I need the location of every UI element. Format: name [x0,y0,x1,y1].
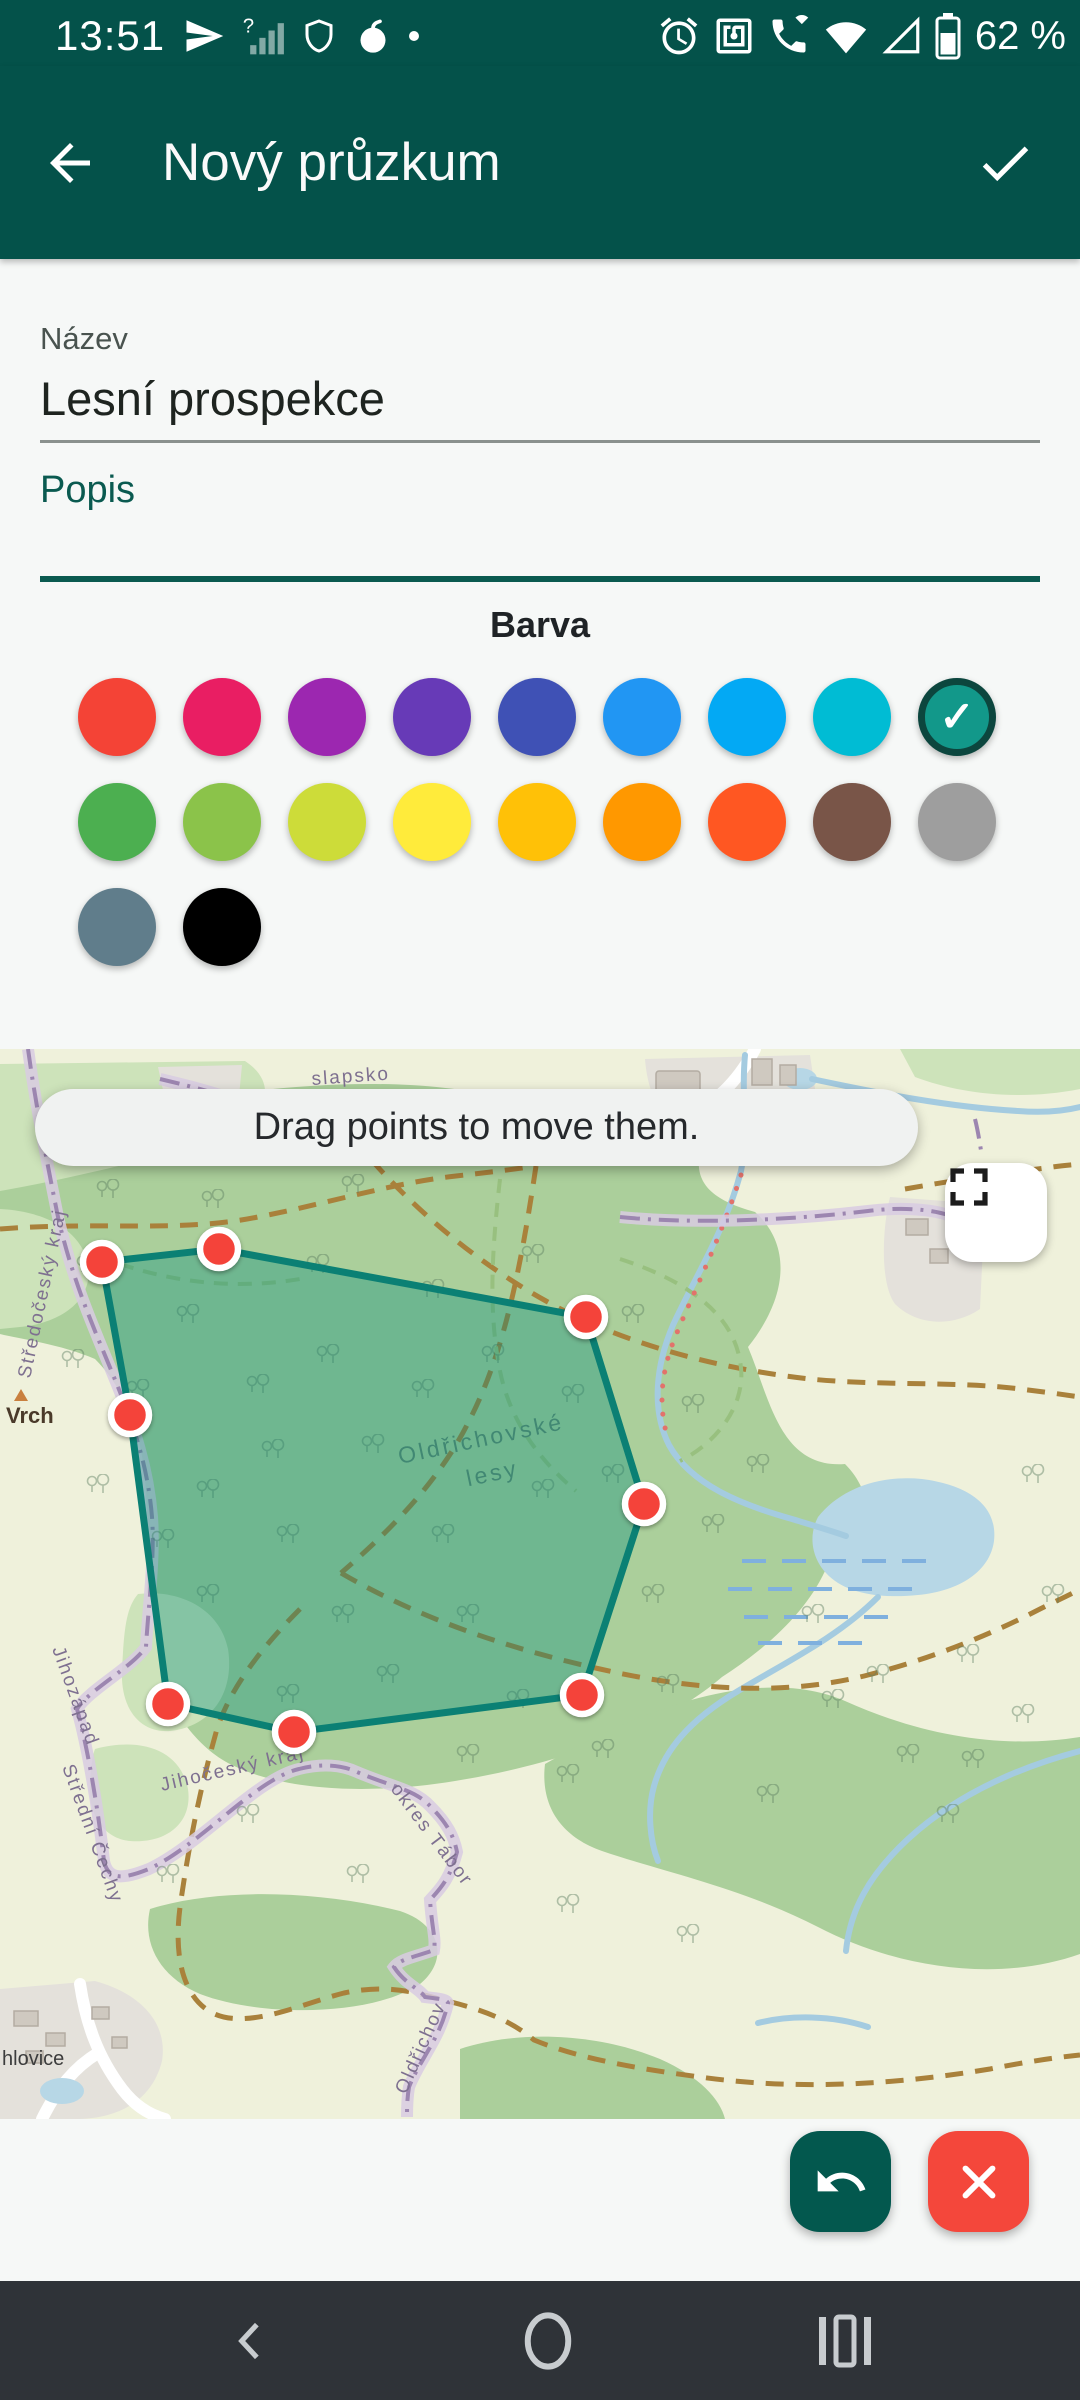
color-swatch-lime[interactable] [288,783,366,861]
color-swatch-yellow[interactable] [393,783,471,861]
color-swatch-blue[interactable] [603,678,681,756]
undo-button[interactable] [790,2131,891,2232]
color-swatch-black[interactable] [183,888,261,966]
polygon-vertex-handle[interactable] [200,1230,238,1268]
color-swatch-light-green[interactable] [183,783,261,861]
polygon-vertex-handle[interactable] [275,1713,313,1751]
color-swatch-green[interactable] [78,783,156,861]
color-swatch-amber[interactable] [498,783,576,861]
send-notification-icon [183,15,225,57]
map-canvas[interactable]: slapsko Středočeský kraj Vrch Oldřichovs… [0,1049,1080,2119]
nav-home-button[interactable] [516,2309,580,2373]
polygon-vertex-handle[interactable] [563,1676,601,1714]
edit-action-bar [0,2119,1080,2281]
cancel-button[interactable] [928,2131,1029,2232]
color-swatch-brown[interactable] [813,783,891,861]
confirm-button[interactable] [974,132,1036,194]
pond-town [40,2078,84,2104]
android-nav-bar [0,2281,1080,2400]
page-title: Nový průzkum [162,132,501,193]
color-picker: Barva ✓ [0,604,1080,966]
polygon-vertex-handle[interactable] [149,1685,187,1723]
fullscreen-button[interactable] [945,1163,1047,1262]
wifi-icon [823,14,869,58]
cellular-empty-icon [881,15,923,57]
arrow-back-icon [40,133,100,193]
status-bar: 13:51 ? [0,0,1080,66]
hint-toast: Drag points to move them. [35,1089,918,1166]
check-icon [974,132,1036,194]
app-notification-icon [353,14,393,58]
survey-form: Název Lesní prospekce Popis [0,259,1080,582]
description-field[interactable] [40,512,1040,582]
survey-polygon [102,1249,644,1732]
color-swatch-red[interactable] [78,678,156,756]
color-swatch-grey[interactable] [918,783,996,861]
color-swatch-blue-grey[interactable] [78,888,156,966]
color-swatch-light-blue[interactable] [708,678,786,756]
polygon-vertex-handle[interactable] [625,1485,663,1523]
polygon-vertex-handle[interactable] [111,1396,149,1434]
battery-icon [935,12,961,60]
polygon-vertex-handle[interactable] [83,1243,121,1281]
back-button[interactable] [40,133,100,193]
close-icon [952,2155,1006,2209]
selected-check-icon: ✓ [939,696,974,738]
notification-dot-icon [409,31,419,41]
phone-screen: 13:51 ? [0,0,1080,2400]
nav-recents-button[interactable] [813,2309,877,2373]
clock: 13:51 [55,12,165,60]
color-swatch-purple[interactable] [288,678,366,756]
color-picker-title: Barva [0,604,1080,646]
signal-question-icon: ? [241,14,285,58]
nav-back-button[interactable] [219,2309,283,2373]
name-field-label: Název [40,321,1040,357]
alarm-icon [657,14,701,58]
map-label-peak: Vrch [6,1403,54,1428]
name-field[interactable]: Lesní prospekce [40,371,1040,443]
color-swatch-cyan[interactable] [813,678,891,756]
nav-recents-icon [813,2312,877,2370]
color-swatch-orange[interactable] [603,783,681,861]
polygon-vertex-handle[interactable] [567,1298,605,1336]
shield-icon [301,16,337,56]
svg-text:?: ? [243,15,254,37]
wifi-calling-icon [767,14,811,58]
nav-back-icon [223,2311,279,2371]
color-swatch-indigo[interactable] [498,678,576,756]
description-field-label: Popis [40,469,1040,512]
map-label-town: hlovice [2,2048,64,2070]
battery-percent: 62 % [975,14,1066,59]
color-swatch-deep-purple[interactable] [393,678,471,756]
nav-home-icon [521,2308,575,2374]
color-swatch-deep-orange[interactable] [708,783,786,861]
color-swatch-pink[interactable] [183,678,261,756]
nfc-icon [713,15,755,57]
map-area[interactable]: slapsko Středočeský kraj Vrch Oldřichovs… [0,1049,1080,2119]
color-swatch-grid: ✓ [0,678,1080,966]
app-bar: Nový průzkum [0,66,1080,259]
color-swatch-teal[interactable]: ✓ [918,678,996,756]
undo-icon [813,2154,869,2210]
